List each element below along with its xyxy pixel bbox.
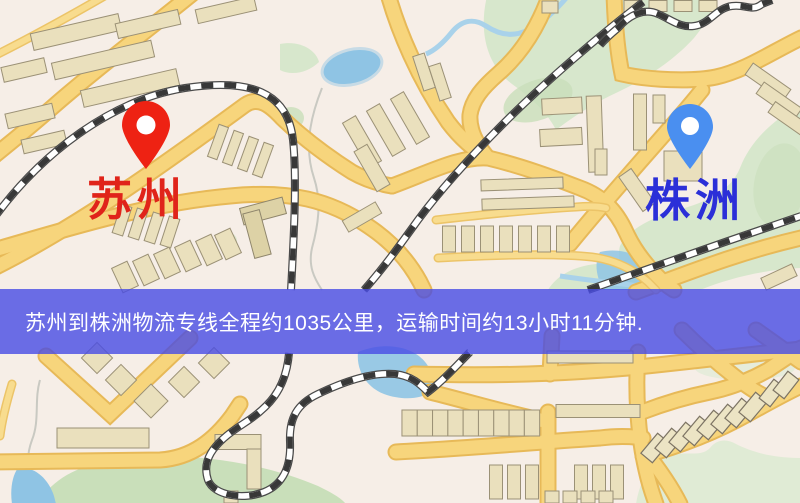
building xyxy=(443,226,456,252)
logistics-map-screenshot: 苏州 株洲 苏州到株洲物流专线全程约1035公里，运输时间约13小时11分钟. xyxy=(0,0,800,503)
building xyxy=(463,410,478,436)
building xyxy=(490,465,503,499)
building xyxy=(542,1,558,13)
building xyxy=(542,97,583,115)
building xyxy=(481,177,563,191)
building xyxy=(545,491,559,503)
building xyxy=(500,226,513,252)
building xyxy=(699,1,717,12)
building xyxy=(519,226,532,252)
building xyxy=(417,410,432,436)
building xyxy=(595,149,607,175)
building xyxy=(526,465,539,499)
building xyxy=(481,226,494,252)
destination-city-label: 株洲 xyxy=(610,179,780,224)
building xyxy=(556,405,640,418)
pin-hole xyxy=(681,117,699,135)
building xyxy=(494,410,509,436)
building xyxy=(30,14,122,51)
building xyxy=(508,465,521,499)
building xyxy=(509,410,524,436)
building xyxy=(1,58,47,83)
building xyxy=(540,127,583,146)
building xyxy=(581,491,595,503)
building xyxy=(599,491,613,503)
map-canvas xyxy=(0,0,800,503)
building xyxy=(168,366,199,397)
building xyxy=(195,0,257,24)
building xyxy=(674,1,692,12)
pin-hole xyxy=(137,116,156,135)
origin-city-label: 苏州 xyxy=(52,178,222,223)
building xyxy=(634,94,647,150)
building xyxy=(478,410,493,436)
building xyxy=(524,410,539,436)
building xyxy=(433,410,448,436)
route-info-banner: 苏州到株洲物流专线全程约1035公里，运输时间约13小时11分钟. xyxy=(0,289,800,354)
building xyxy=(557,226,570,252)
route-info-text: 苏州到株洲物流专线全程约1035公里，运输时间约13小时11分钟. xyxy=(0,307,643,337)
building xyxy=(653,95,665,123)
building xyxy=(247,449,261,489)
building xyxy=(448,410,463,436)
building xyxy=(563,491,577,503)
building xyxy=(402,410,417,436)
building xyxy=(462,226,475,252)
building xyxy=(538,226,551,252)
building xyxy=(57,428,149,448)
